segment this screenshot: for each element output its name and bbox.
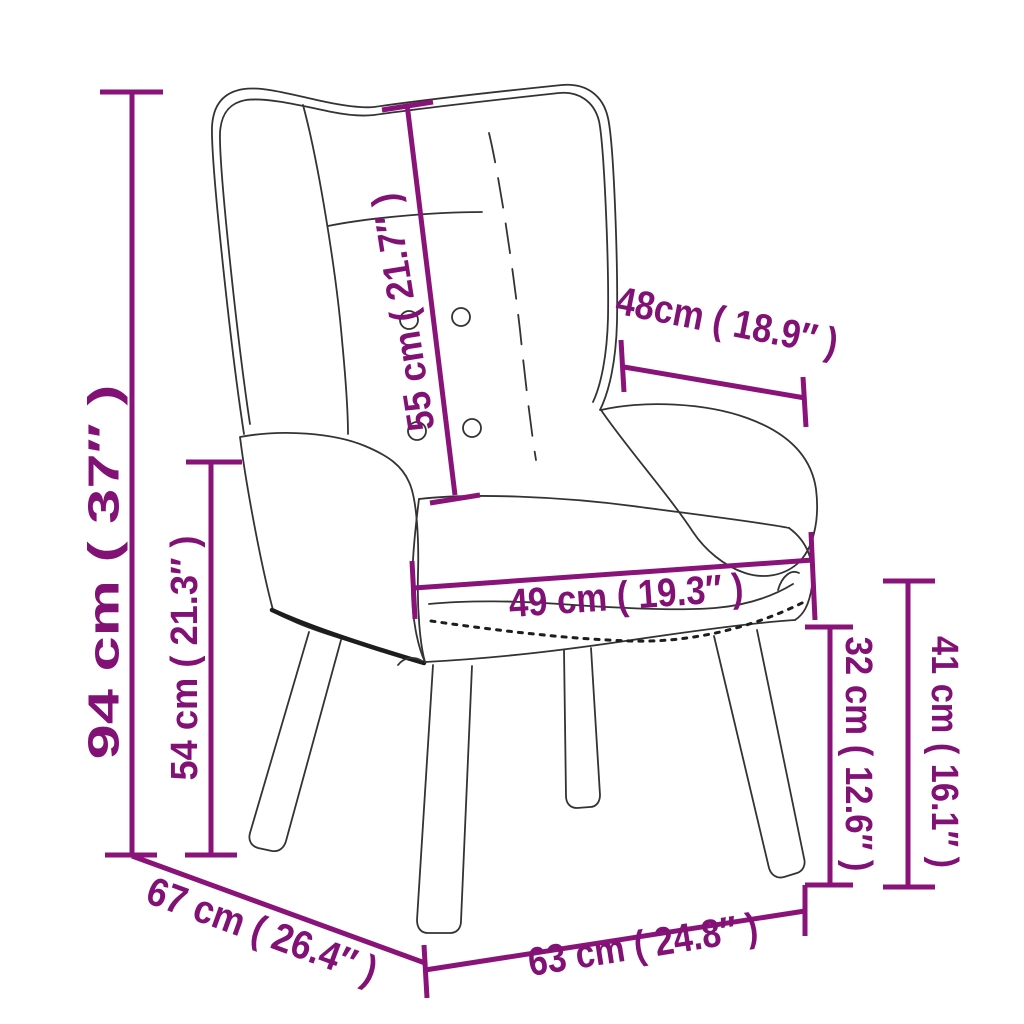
chair-illustration [212, 85, 817, 933]
dimension-seat-top-height: 41 cm ( 16.1″ ) [883, 581, 965, 887]
leg-front-left [417, 665, 472, 933]
dimension-backrest-length: 55 cm ( 21.7″ ) [364, 102, 480, 503]
dimension-clearance-height: 32 cm ( 12.6″ ) [805, 627, 879, 885]
left-armrest-outline [240, 433, 425, 662]
dimension-seat-width-label: 49 cm ( 19.3″ ) [507, 566, 744, 626]
dimension-armrest-depth-label: 48cm ( 18.9″ ) [612, 279, 841, 365]
dimension-seat-top-height-label: 41 cm ( 16.1″ ) [923, 636, 965, 868]
dimension-clearance-height-label: 32 cm ( 12.6″ ) [837, 637, 879, 872]
leg-back-left [249, 632, 341, 851]
dimension-total-depth-label: 67 cm ( 26.4″ ) [141, 869, 383, 993]
dimension-total-depth: 67 cm ( 26.4″ ) [132, 856, 425, 993]
seat-top-edge [419, 496, 789, 528]
backrest-right-seam [489, 133, 536, 460]
button-bottom-right [463, 419, 481, 437]
dimension-total-height: 94 cm ( 37″ ) [80, 92, 164, 855]
dimension-diagram: 94 cm ( 37″ ) 54 cm ( 21.3″ ) 55 cm ( 21… [0, 0, 1024, 1024]
dimension-seat-side-height: 54 cm ( 21.3″ ) [164, 462, 242, 855]
dimension-seat-width: 49 cm ( 19.3″ ) [412, 532, 815, 626]
dimension-total-height-label: 94 cm ( 37″ ) [80, 385, 129, 760]
leg-front-right [714, 630, 805, 878]
dimension-lines: 94 cm ( 37″ ) 54 cm ( 21.3″ ) 55 cm ( 21… [80, 92, 966, 998]
dimension-seat-side-height-label: 54 cm ( 21.3″ ) [164, 536, 206, 781]
backrest-left-seam [303, 105, 348, 434]
dimension-base-width-label: 63 cm ( 24.8″ ) [525, 905, 761, 985]
left-armrest-bottom-shadow [272, 610, 424, 663]
diagram-canvas: 94 cm ( 37″ ) 54 cm ( 21.3″ ) 55 cm ( 21… [0, 0, 1024, 1024]
leg-back-right [564, 648, 600, 808]
right-armrest-outline [601, 404, 817, 576]
button-top-right [452, 308, 470, 326]
dimension-base-width: 63 cm ( 24.8″ ) [424, 885, 805, 998]
